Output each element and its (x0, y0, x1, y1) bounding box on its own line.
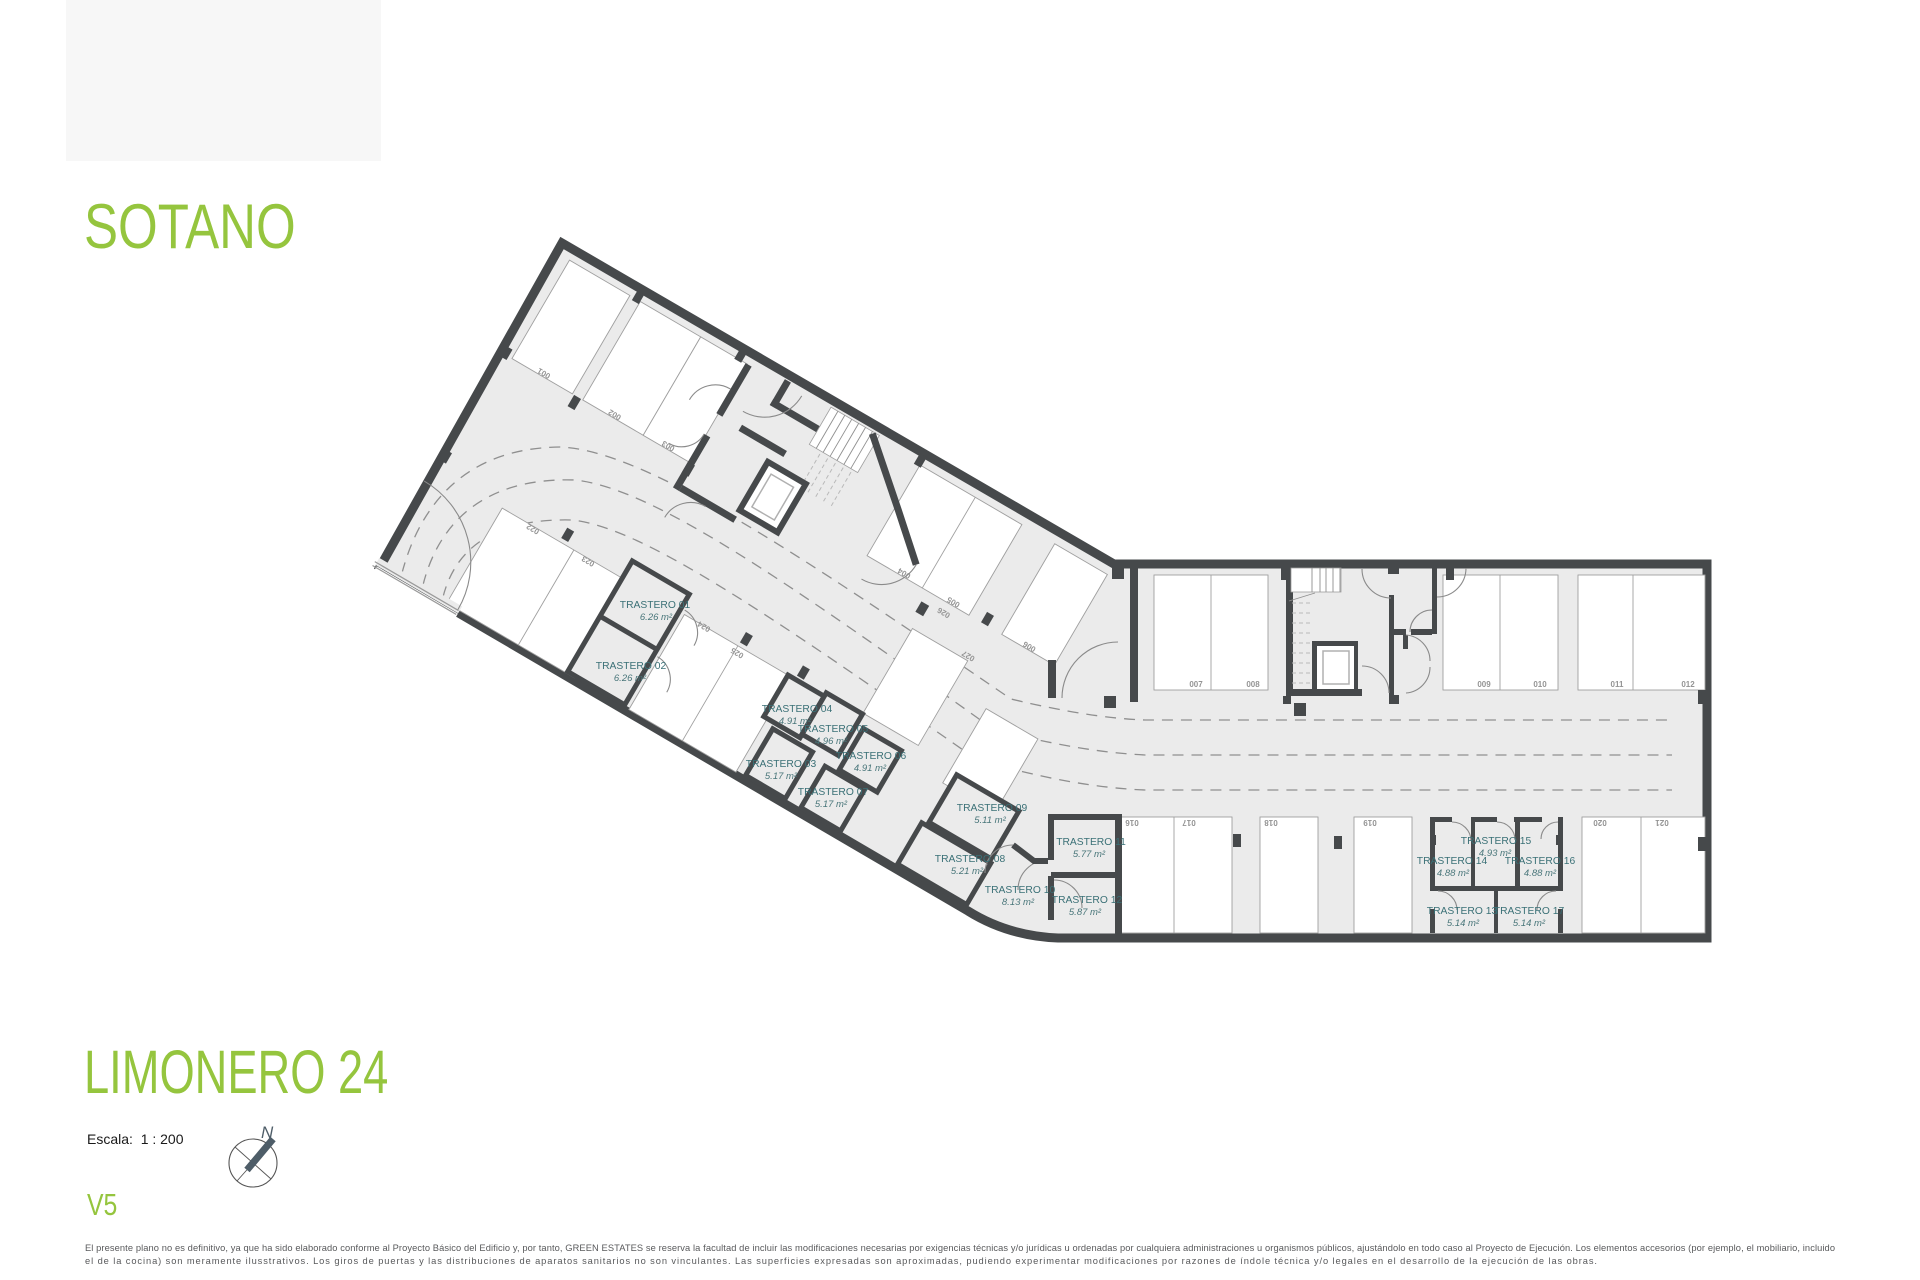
svg-text:6.26 m²: 6.26 m² (640, 612, 673, 623)
svg-text:TRASTERO 17: TRASTERO 17 (1494, 906, 1565, 917)
svg-text:007: 007 (1189, 680, 1203, 689)
svg-text:020: 020 (1593, 818, 1607, 827)
svg-text:el de la cocina) son meramente: el de la cocina) son meramente ilusstrat… (85, 1256, 1597, 1266)
svg-text:V5: V5 (87, 1187, 117, 1221)
svg-text:5.21 m²: 5.21 m² (951, 866, 984, 877)
svg-text:021: 021 (1655, 818, 1669, 827)
svg-text:N: N (261, 1123, 274, 1142)
svg-text:TRASTERO 16: TRASTERO 16 (1505, 856, 1576, 867)
svg-text:TRASTERO 06: TRASTERO 06 (836, 751, 907, 762)
svg-text:TRASTERO 13: TRASTERO 13 (1427, 906, 1498, 917)
svg-text:009: 009 (1477, 680, 1491, 689)
svg-text:TRASTERO 08: TRASTERO 08 (935, 854, 1006, 865)
svg-text:TRASTERO 05: TRASTERO 05 (798, 724, 869, 735)
svg-text:SOTANO: SOTANO (84, 192, 296, 262)
svg-text:017: 017 (1182, 818, 1196, 827)
svg-text:TRASTERO 12: TRASTERO 12 (1052, 895, 1123, 906)
svg-text:LIMONERO 24: LIMONERO 24 (84, 1038, 388, 1106)
svg-text:4.88 m²: 4.88 m² (1524, 868, 1557, 879)
svg-text:5.14 m²: 5.14 m² (1447, 918, 1480, 929)
svg-text:5.17 m²: 5.17 m² (765, 771, 798, 782)
svg-text:010: 010 (1533, 680, 1547, 689)
svg-text:018: 018 (1264, 818, 1278, 827)
svg-text:TRASTERO 09: TRASTERO 09 (957, 803, 1028, 814)
svg-text:8.13 m²: 8.13 m² (1002, 897, 1035, 908)
svg-text:4.96 m²: 4.96 m² (815, 736, 848, 747)
svg-text:TRASTERO 07: TRASTERO 07 (798, 787, 869, 798)
svg-text:TRASTERO 04: TRASTERO 04 (762, 704, 833, 715)
svg-text:011: 011 (1611, 680, 1624, 689)
svg-text:012: 012 (1681, 680, 1695, 689)
svg-text:4.88 m²: 4.88 m² (1437, 868, 1470, 879)
svg-text:5.14 m²: 5.14 m² (1513, 918, 1546, 929)
svg-text:6.26 m²: 6.26 m² (614, 673, 647, 684)
svg-text:TRASTERO 11: TRASTERO 11 (1056, 837, 1126, 848)
svg-text:TRASTERO 14: TRASTERO 14 (1417, 856, 1488, 867)
svg-text:TRASTERO 01: TRASTERO 01 (620, 600, 691, 611)
svg-text:5.87 m²: 5.87 m² (1069, 907, 1102, 918)
svg-text:Escala: 1 : 200: Escala: 1 : 200 (87, 1131, 184, 1147)
svg-text:5.77 m²: 5.77 m² (1073, 849, 1106, 860)
svg-text:5.17 m²: 5.17 m² (815, 799, 848, 810)
svg-text:016: 016 (1125, 818, 1139, 827)
svg-text:TRASTERO 15: TRASTERO 15 (1461, 836, 1532, 847)
svg-text:TRASTERO 02: TRASTERO 02 (596, 661, 667, 672)
svg-text:El presente plano no es defini: El presente plano no es definitivo, ya q… (85, 1243, 1835, 1253)
svg-text:019: 019 (1363, 818, 1377, 827)
svg-text:5.11 m²: 5.11 m² (974, 815, 1006, 826)
svg-text:TRASTERO 03: TRASTERO 03 (746, 759, 817, 770)
svg-text:008: 008 (1246, 680, 1260, 689)
svg-text:TRASTERO 10: TRASTERO 10 (985, 885, 1056, 896)
svg-text:4.91 m²: 4.91 m² (854, 763, 887, 774)
